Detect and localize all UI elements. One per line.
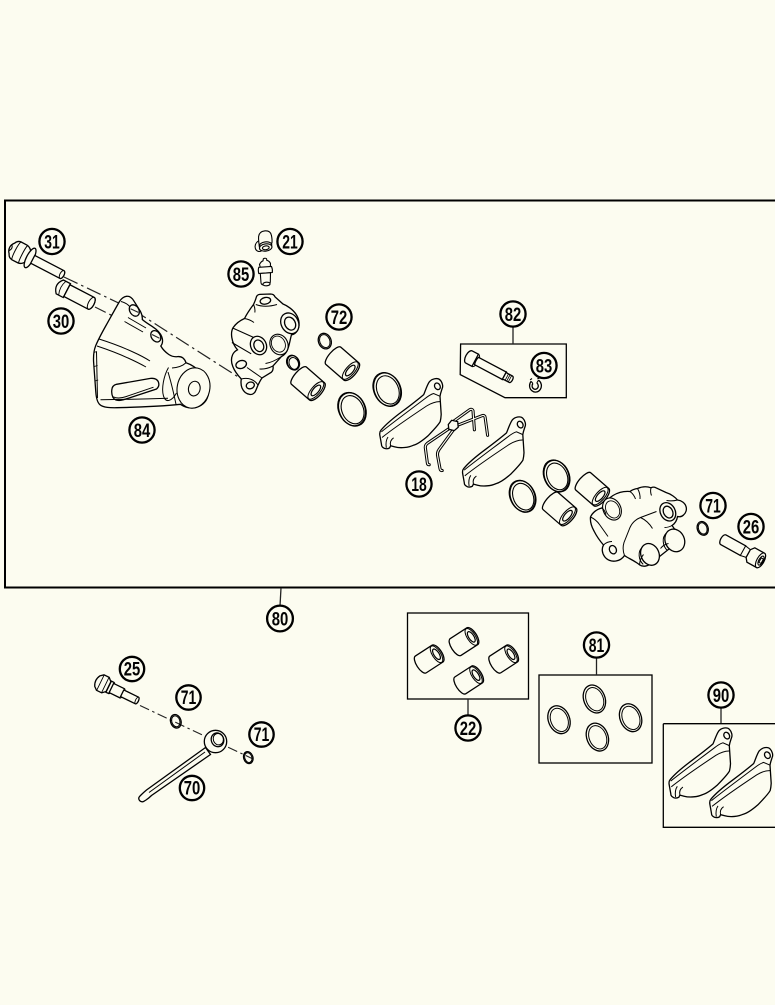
svg-text:85: 85 <box>233 264 250 286</box>
svg-text:18: 18 <box>411 474 427 496</box>
svg-text:72: 72 <box>331 307 348 329</box>
svg-text:84: 84 <box>134 420 151 442</box>
svg-text:83: 83 <box>536 355 553 377</box>
svg-text:90: 90 <box>713 685 730 707</box>
svg-text:26: 26 <box>743 516 760 538</box>
svg-text:80: 80 <box>272 608 289 630</box>
svg-text:21: 21 <box>282 231 298 253</box>
svg-text:71: 71 <box>181 687 197 709</box>
svg-text:71: 71 <box>705 495 721 517</box>
svg-text:81: 81 <box>589 635 605 657</box>
svg-text:22: 22 <box>460 718 477 740</box>
svg-text:70: 70 <box>184 778 201 800</box>
svg-text:82: 82 <box>505 304 522 326</box>
svg-text:25: 25 <box>124 659 141 681</box>
svg-text:30: 30 <box>53 311 70 333</box>
svg-text:31: 31 <box>44 231 60 253</box>
svg-text:71: 71 <box>254 724 270 746</box>
